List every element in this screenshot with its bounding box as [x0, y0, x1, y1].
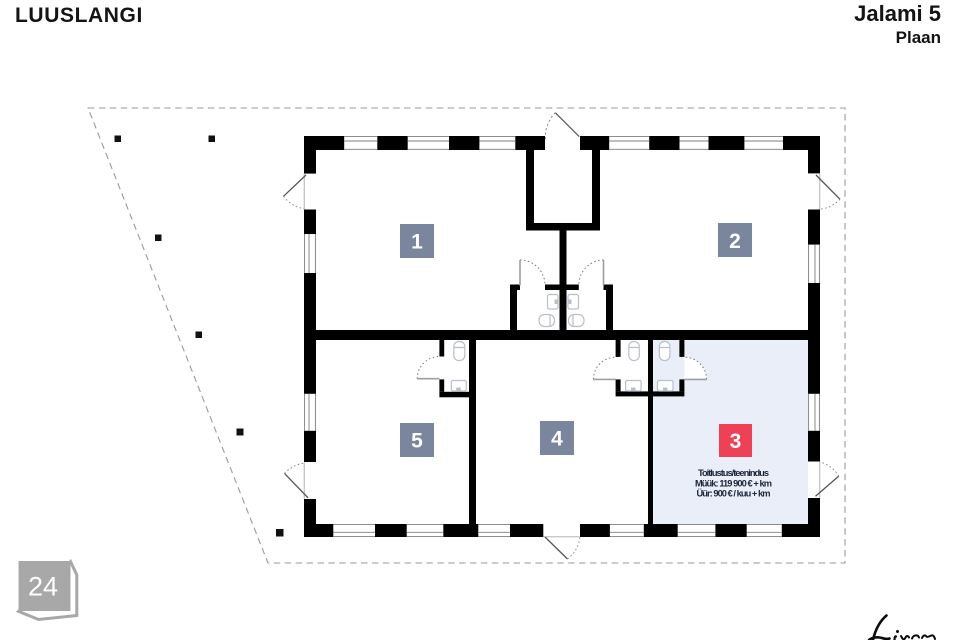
svg-text:Üür: 900 € / kuu + km: Üür: 900 € / kuu + km — [697, 489, 771, 499]
svg-text:Toitlustus/teenindus: Toitlustus/teenindus — [698, 468, 769, 478]
svg-text:Plaan: Plaan — [896, 28, 941, 47]
svg-text:3: 3 — [730, 430, 742, 453]
svg-text:5: 5 — [411, 430, 423, 453]
svg-text:Jalami 5: Jalami 5 — [854, 1, 941, 26]
svg-text:1: 1 — [411, 231, 423, 254]
svg-text:Müük: 119 900 € + km: Müük: 119 900 € + km — [695, 479, 772, 489]
svg-text:24: 24 — [28, 572, 58, 602]
svg-text:2: 2 — [729, 230, 741, 253]
svg-text:LUUSLANGI: LUUSLANGI — [15, 4, 143, 27]
svg-text:4: 4 — [551, 428, 563, 451]
